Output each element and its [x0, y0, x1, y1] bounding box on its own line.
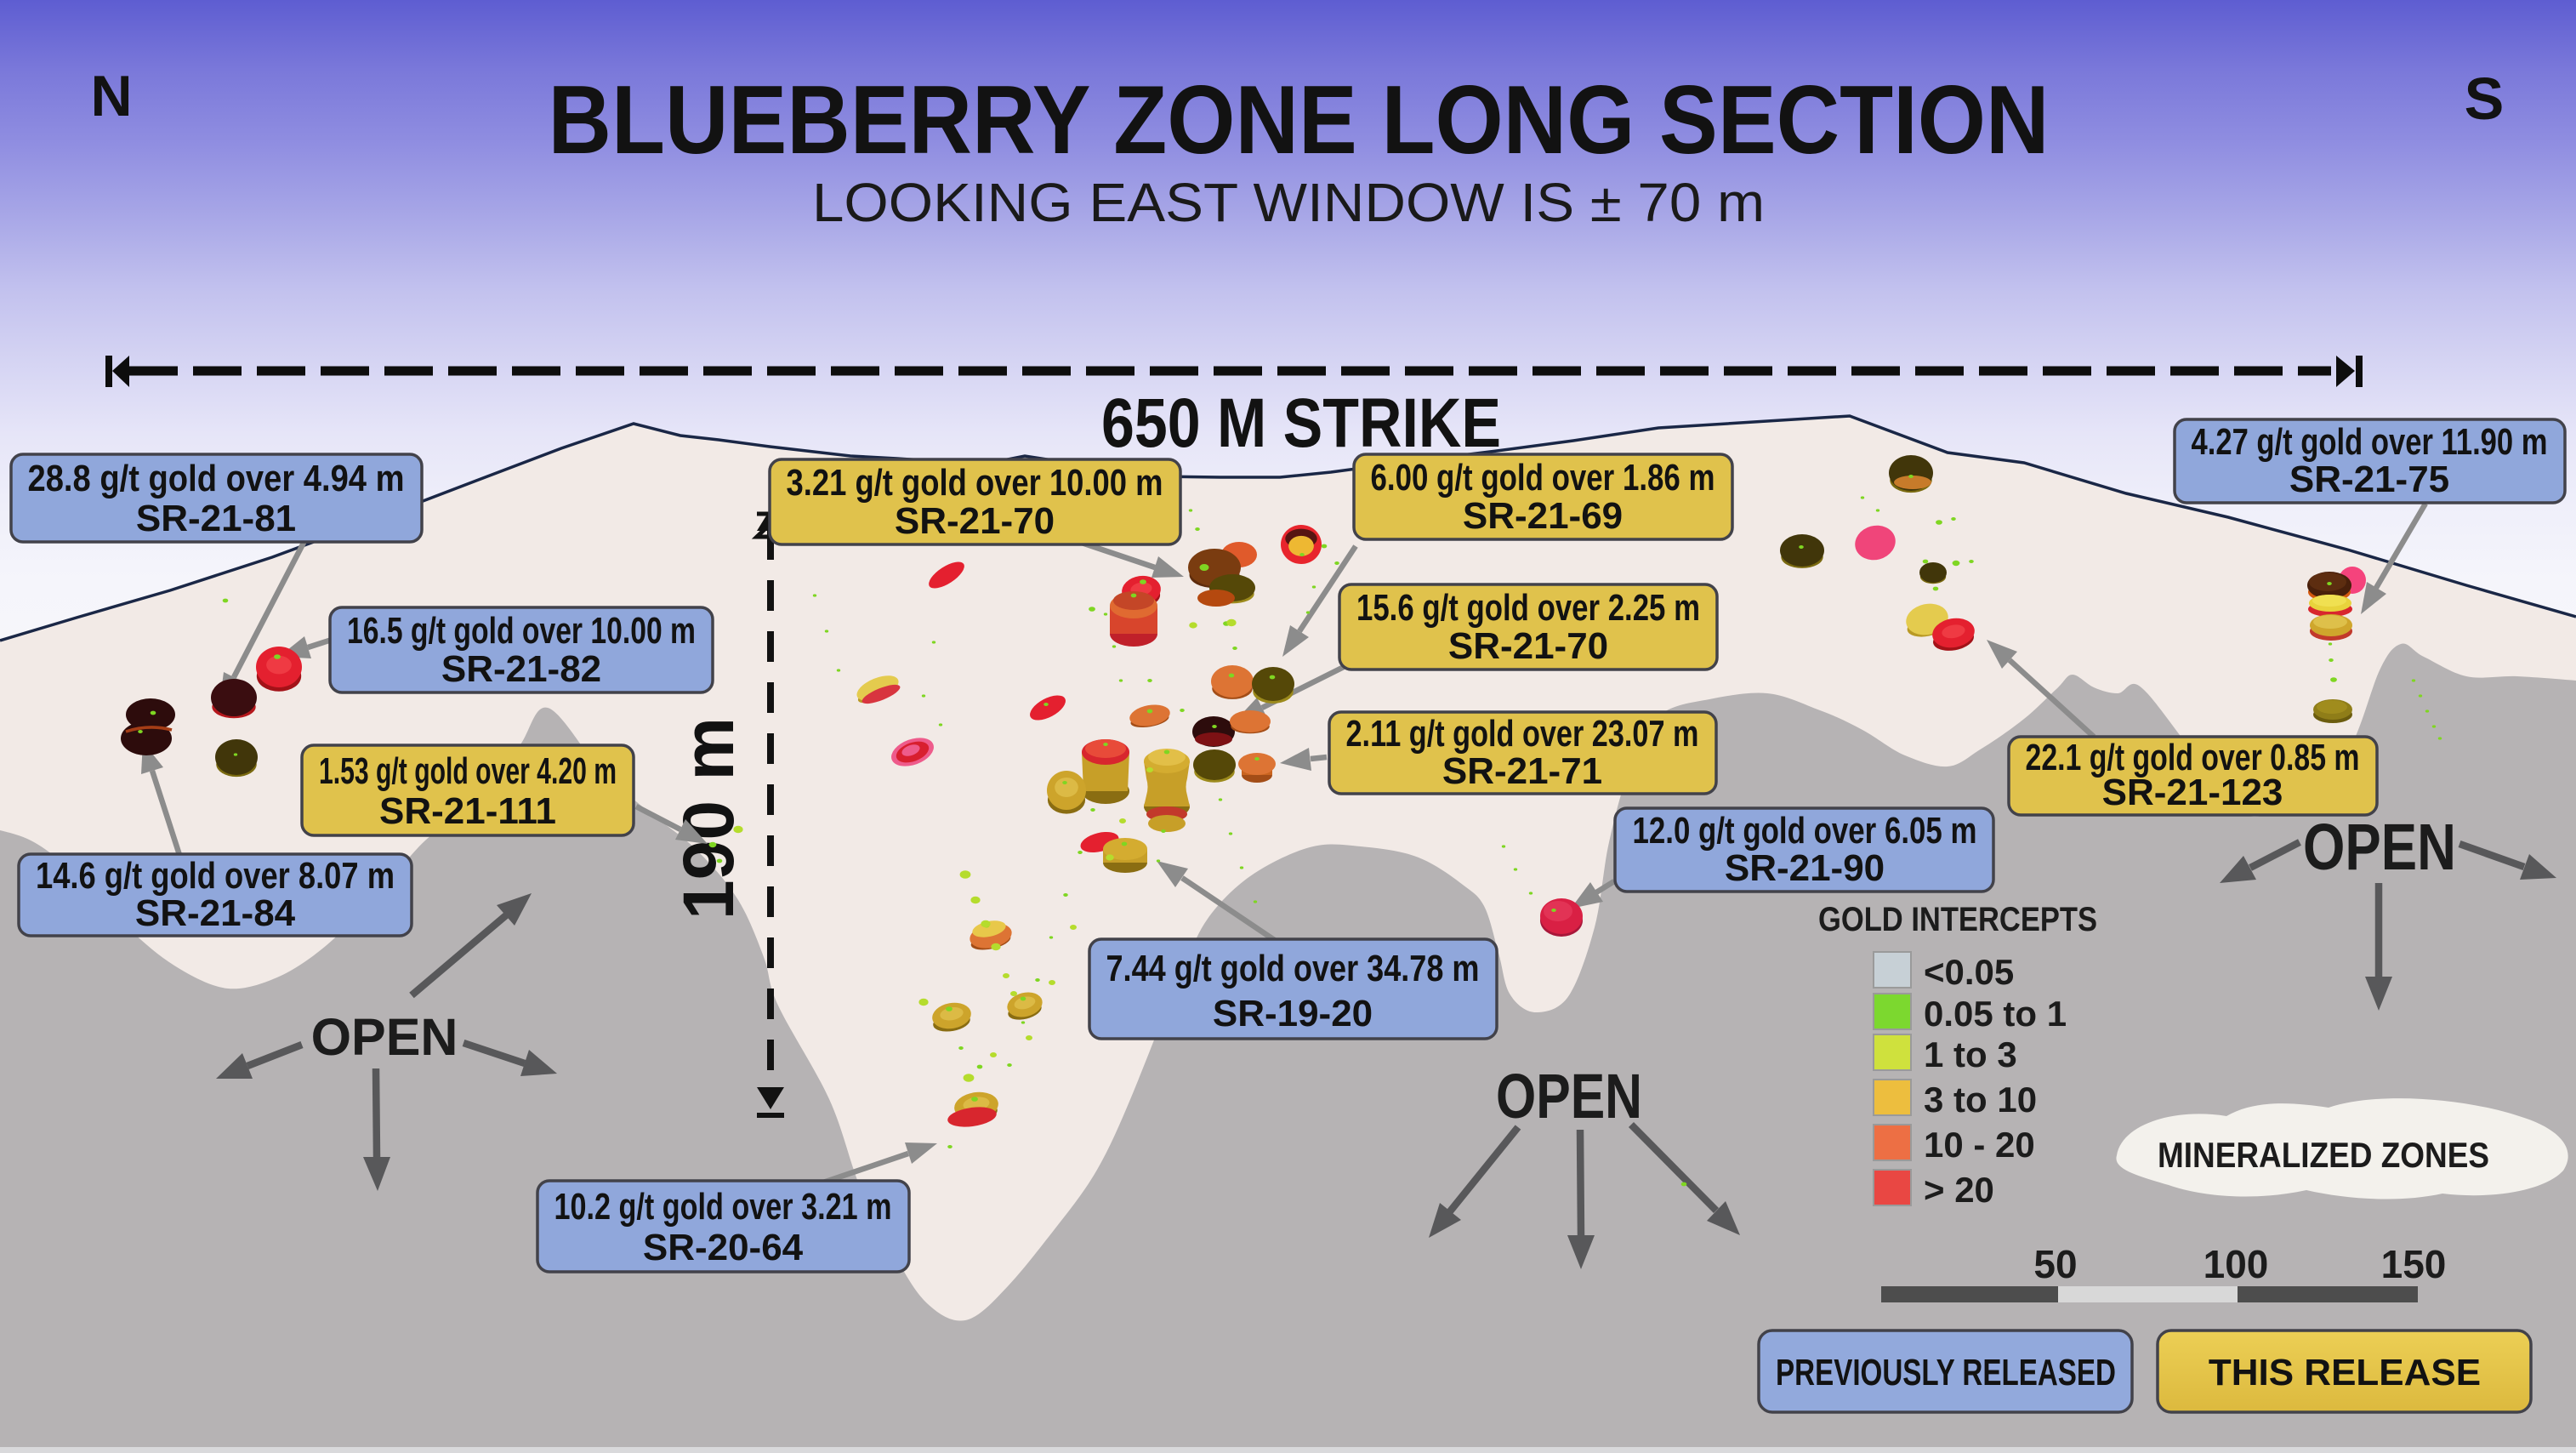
svg-text:1.53 g/t gold over 4.20 m: 1.53 g/t gold over 4.20 m [319, 750, 617, 792]
svg-text:GOLD INTERCEPTS: GOLD INTERCEPTS [1818, 901, 2097, 938]
svg-text:SR-21-111: SR-21-111 [379, 790, 556, 832]
svg-text:3.21 g/t gold over 10.00 m: 3.21 g/t gold over 10.00 m [787, 462, 1163, 504]
svg-text:SR-21-71: SR-21-71 [1442, 750, 1602, 792]
svg-text:> 20: > 20 [1924, 1170, 1994, 1210]
svg-text:0.05 to 1: 0.05 to 1 [1924, 994, 2067, 1034]
svg-text:OPEN: OPEN [311, 1008, 458, 1066]
svg-text:SR-21-84: SR-21-84 [135, 892, 296, 934]
svg-text:OPEN: OPEN [1496, 1061, 1642, 1131]
svg-text:12.0 g/t gold over 6.05 m: 12.0 g/t gold over 6.05 m [1633, 810, 1977, 852]
svg-text:3 to 10: 3 to 10 [1924, 1080, 2037, 1120]
svg-text:10 - 20: 10 - 20 [1924, 1125, 2035, 1165]
svg-text:LOOKING EAST WINDOW IS ± 70 m: LOOKING EAST WINDOW IS ± 70 m [812, 172, 1765, 233]
svg-text:SR-21-70: SR-21-70 [1448, 625, 1608, 667]
svg-text:4.27 g/t gold over 11.90 m: 4.27 g/t gold over 11.90 m [2192, 421, 2548, 463]
svg-text:SR-19-20: SR-19-20 [1213, 993, 1373, 1034]
svg-text:50: 50 [2033, 1242, 2077, 1286]
svg-text:16.5 g/t gold over 10.00 m: 16.5 g/t gold over 10.00 m [347, 610, 696, 652]
svg-text:190 m: 190 m [668, 717, 748, 920]
svg-text:SR-20-64: SR-20-64 [643, 1227, 804, 1268]
svg-text:28.8 g/t gold over 4.94 m: 28.8 g/t gold over 4.94 m [28, 458, 405, 499]
svg-text:<0.05: <0.05 [1924, 952, 2014, 992]
svg-text:SR-21-81: SR-21-81 [136, 498, 296, 539]
svg-text:OPEN: OPEN [2303, 811, 2456, 884]
svg-text:150: 150 [2381, 1242, 2447, 1286]
svg-text:BLUEBERRY ZONE LONG SECTION: BLUEBERRY ZONE LONG SECTION [549, 66, 2050, 174]
svg-text:THIS RELEASE: THIS RELEASE [2209, 1352, 2481, 1393]
svg-text:PREVIOUSLY RELEASED: PREVIOUSLY RELEASED [1776, 1352, 2116, 1393]
svg-text:650 M STRIKE: 650 M STRIKE [1101, 385, 1501, 462]
svg-text:SR-21-90: SR-21-90 [1725, 847, 1885, 889]
svg-text:N: N [90, 64, 132, 128]
svg-text:SR-21-82: SR-21-82 [441, 648, 601, 690]
svg-text:MINERALIZED ZONES: MINERALIZED ZONES [2158, 1135, 2489, 1175]
svg-text:SR-21-75: SR-21-75 [2289, 459, 2449, 500]
svg-text:SR-21-123: SR-21-123 [2102, 772, 2283, 813]
svg-text:7.44 g/t gold over 34.78 m: 7.44 g/t gold over 34.78 m [1106, 948, 1480, 989]
svg-text:6.00 g/t gold over 1.86 m: 6.00 g/t gold over 1.86 m [1371, 457, 1715, 499]
svg-text:10.2 g/t gold over 3.21 m: 10.2 g/t gold over 3.21 m [554, 1186, 892, 1228]
svg-text:1 to 3: 1 to 3 [1924, 1034, 2017, 1074]
svg-text:SR-21-69: SR-21-69 [1463, 495, 1623, 537]
svg-text:100: 100 [2204, 1242, 2269, 1286]
svg-text:2.11 g/t gold over 23.07 m: 2.11 g/t gold over 23.07 m [1346, 713, 1699, 755]
svg-text:SR-21-70: SR-21-70 [895, 500, 1055, 542]
svg-text:15.6 g/t gold over 2.25 m: 15.6 g/t gold over 2.25 m [1356, 587, 1700, 629]
svg-text:S: S [2465, 66, 2505, 132]
svg-text:14.6 g/t gold over 8.07 m: 14.6 g/t gold over 8.07 m [36, 855, 395, 897]
